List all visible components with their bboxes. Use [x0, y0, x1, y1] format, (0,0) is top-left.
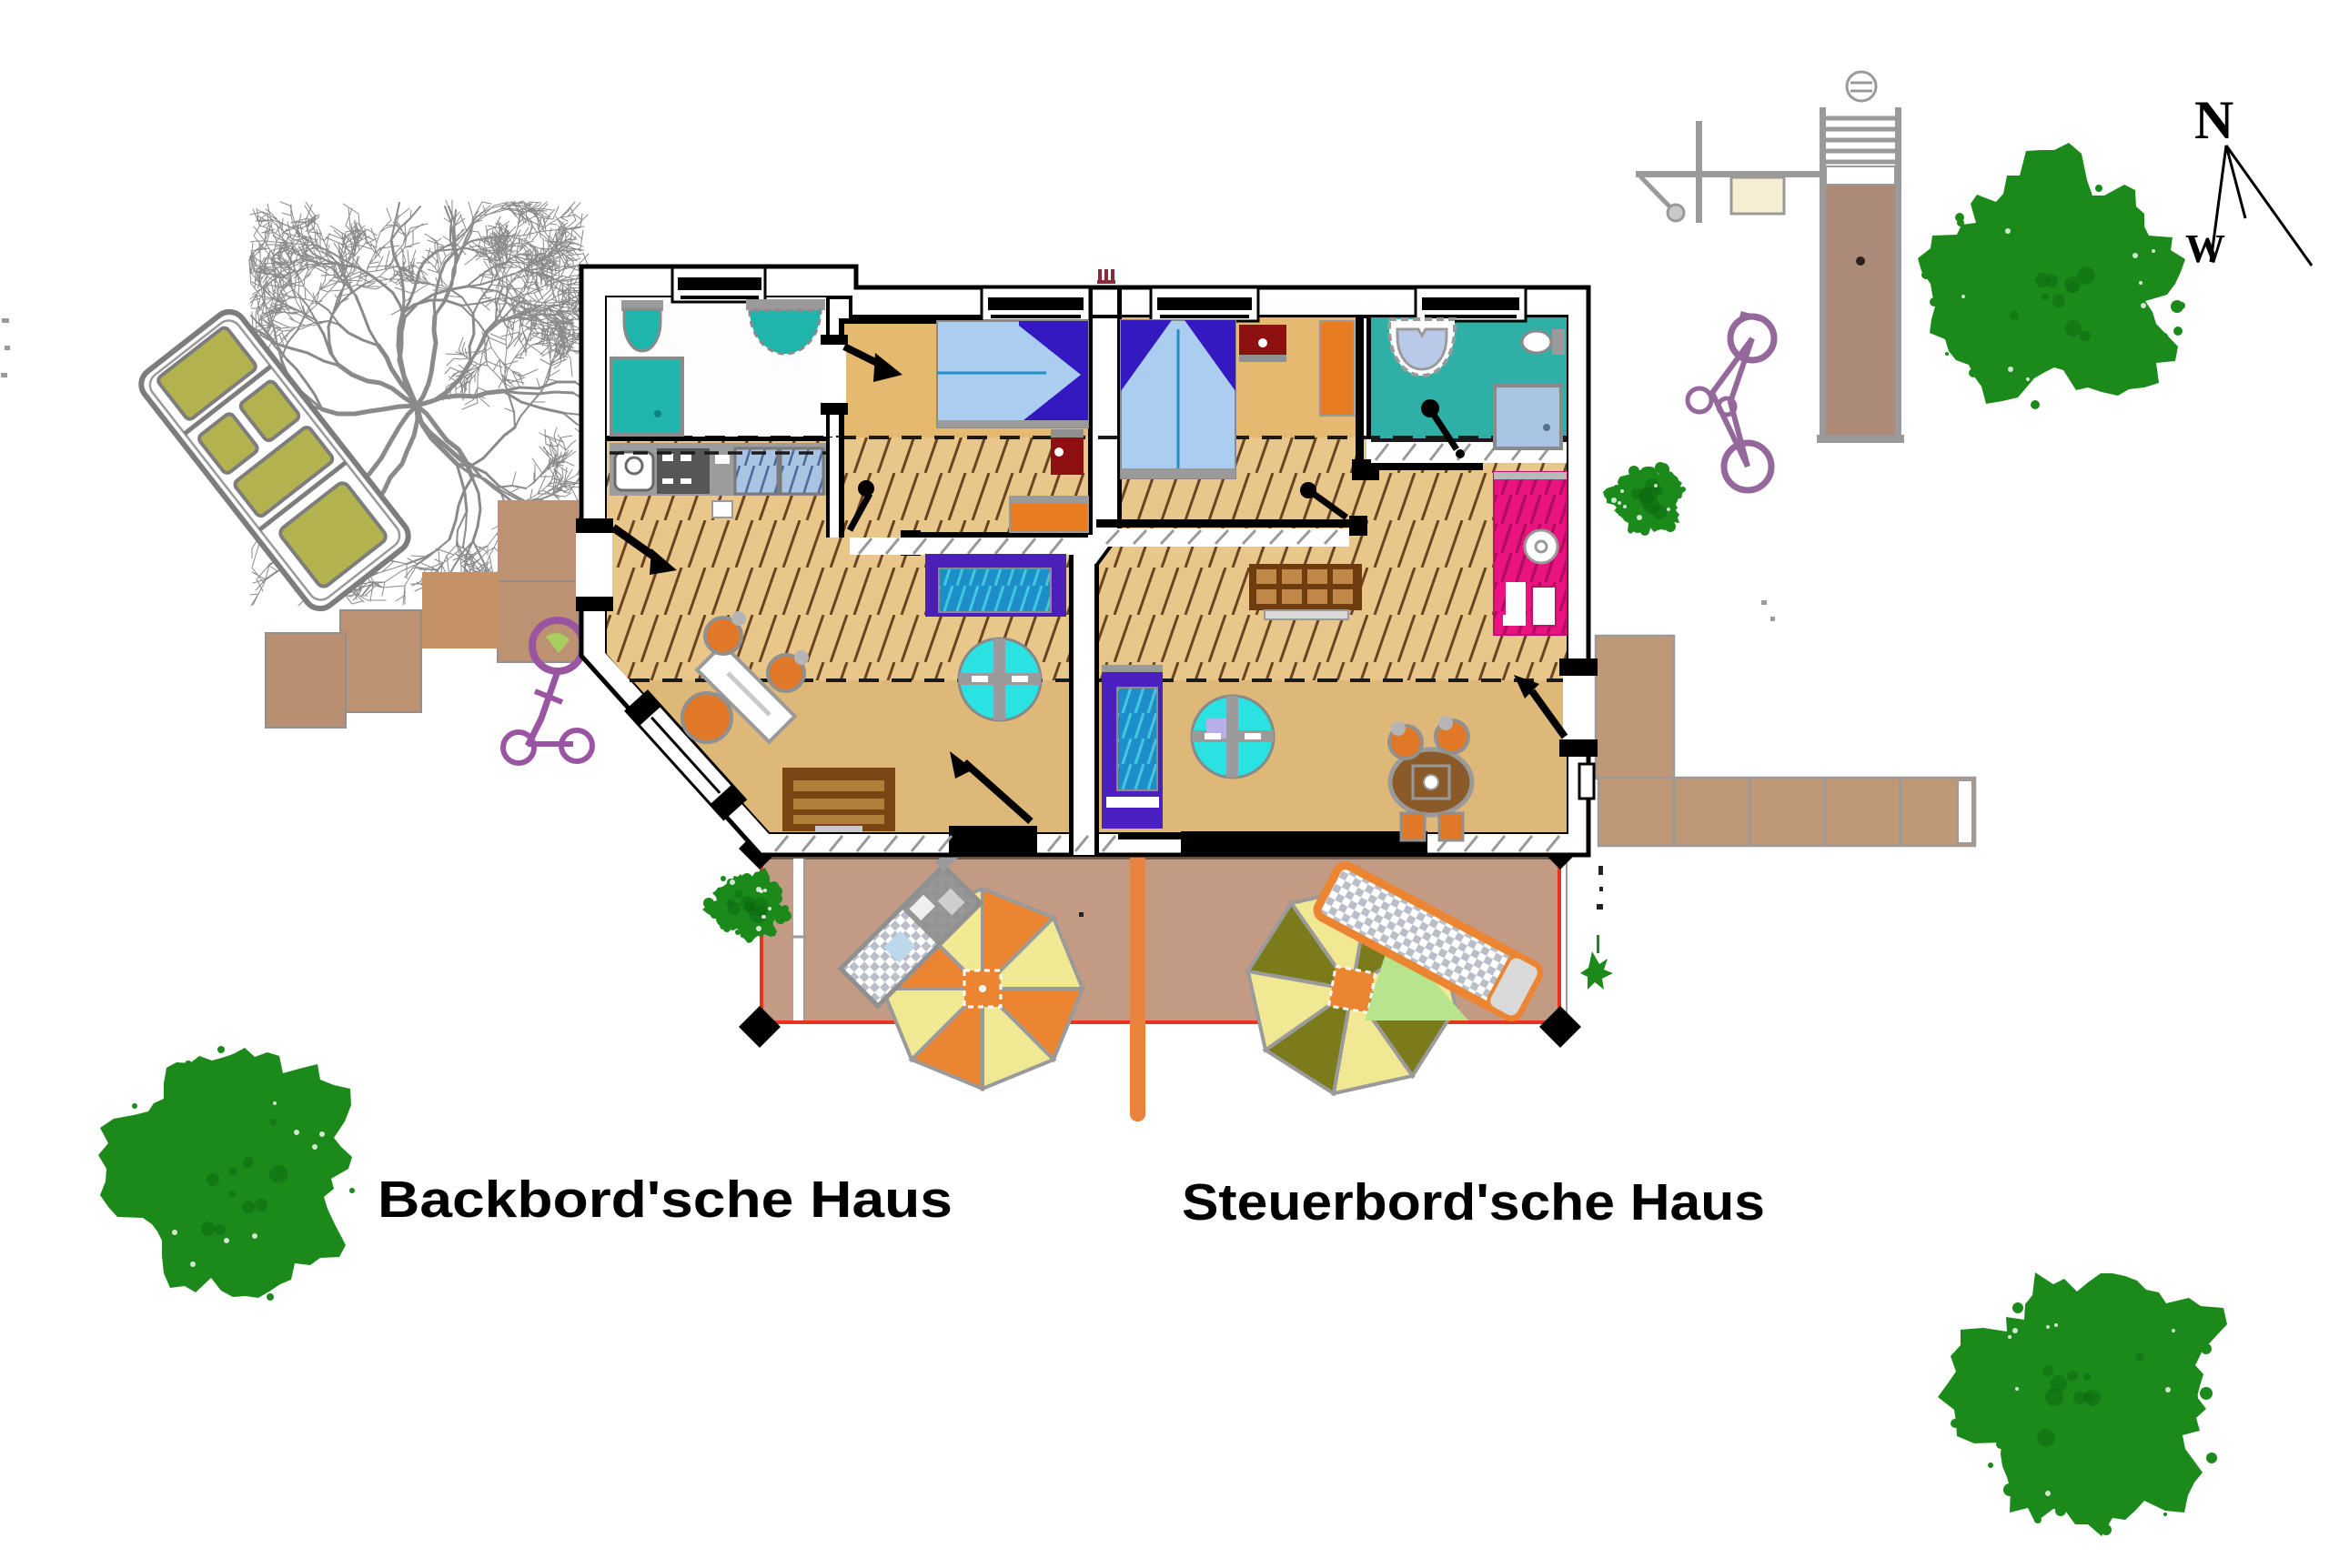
- svg-text:Steuerbord'sche Haus: Steuerbord'sche Haus: [1182, 1173, 1765, 1231]
- svg-text:N: N: [2194, 90, 2233, 150]
- svg-text:Backbord'sche Haus: Backbord'sche Haus: [378, 1171, 953, 1229]
- svg-text:W: W: [2185, 226, 2225, 271]
